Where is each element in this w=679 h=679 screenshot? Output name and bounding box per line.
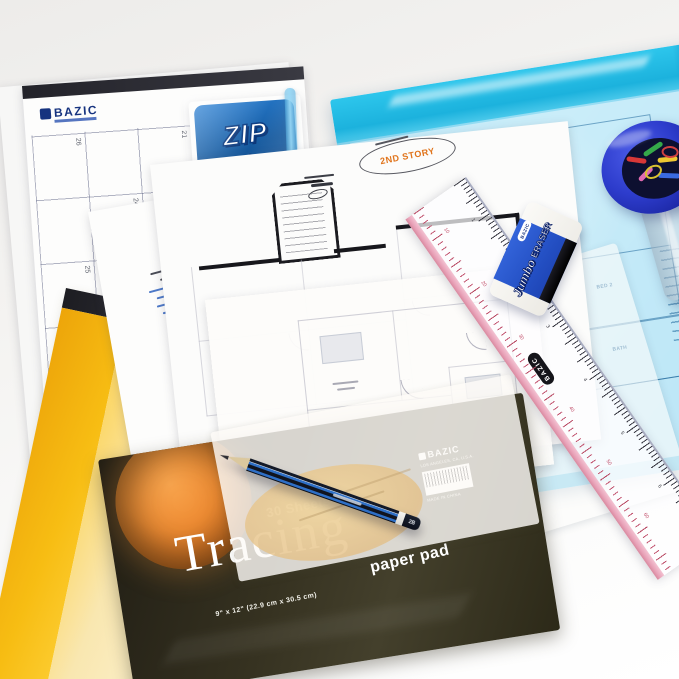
ink-stroke bbox=[304, 174, 334, 179]
calendar-date: 25 bbox=[83, 265, 91, 273]
ruler-inch-label: 5 bbox=[619, 430, 626, 436]
tracing-size-text: 9" x 12" (22.9 cm x 30.5 cm) bbox=[215, 592, 318, 619]
sketch-wall bbox=[199, 258, 281, 270]
calendar-date: 26 bbox=[74, 138, 82, 146]
furniture-block bbox=[319, 332, 364, 364]
sketch-stair-treads bbox=[280, 191, 328, 253]
cover-gloss bbox=[163, 593, 471, 664]
ruler-cm-label: 20 bbox=[480, 280, 488, 288]
paper-clip bbox=[658, 173, 679, 179]
ruler-inch-label: 4 bbox=[582, 377, 589, 383]
sketch-wall bbox=[334, 244, 386, 253]
eraser-label-line1: Jumbo bbox=[510, 257, 539, 299]
ruler-cm-label: 50 bbox=[605, 459, 613, 467]
ruler-cm-label: 60 bbox=[642, 512, 650, 520]
plan-stamp-text: 2ND STORY bbox=[379, 146, 435, 166]
ruler-inch-label: 3 bbox=[544, 324, 551, 330]
faint-line bbox=[392, 310, 402, 400]
door-arc bbox=[466, 331, 487, 352]
ruler-cm-label: 30 bbox=[517, 333, 525, 341]
ruler-cm-label: 10 bbox=[442, 227, 450, 235]
ruler-inch-label: 1 bbox=[470, 217, 477, 223]
eraser-label-line2: ERASER bbox=[529, 221, 553, 259]
bazic-logo-icon bbox=[40, 108, 52, 120]
paper-clip bbox=[626, 156, 647, 164]
ruler-cm-label: 40 bbox=[567, 405, 575, 413]
pencil-label-stroke bbox=[337, 387, 355, 391]
paper-clip-ring bbox=[642, 162, 664, 182]
faint-line bbox=[448, 360, 513, 368]
pencil-label-stroke bbox=[332, 380, 358, 385]
photo-stage: BAZIC 26 21 10 24 25 16 8 bbox=[0, 0, 679, 679]
ruler-inch-label: 6 bbox=[656, 484, 663, 490]
paper-clip bbox=[643, 141, 664, 157]
pencil-grade-text: 2B bbox=[408, 519, 416, 527]
